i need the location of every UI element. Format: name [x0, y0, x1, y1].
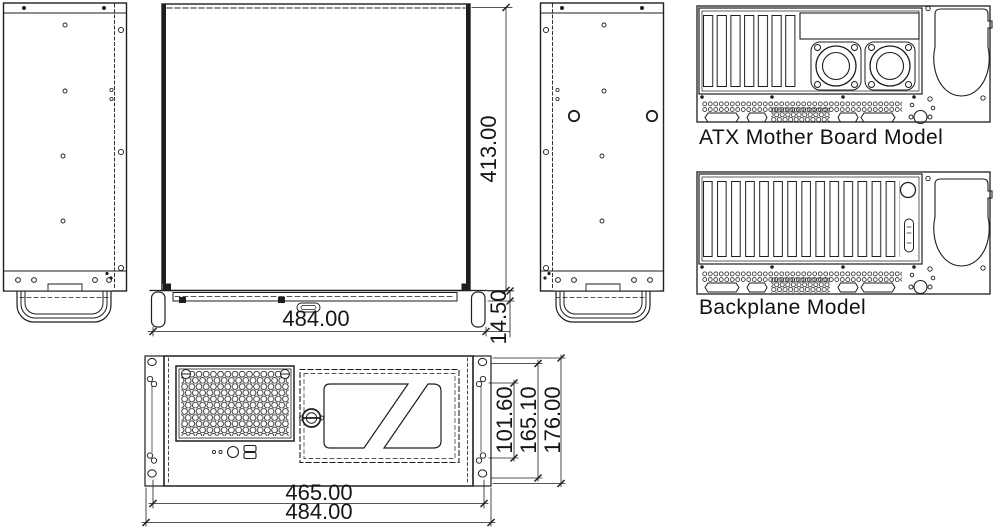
top-view — [150, 4, 487, 327]
door-window-left — [324, 384, 408, 448]
io-shield-cutout — [800, 13, 919, 39]
label-backplane-model: Backplane Model — [699, 296, 866, 320]
front-door — [299, 370, 459, 463]
dim-opening-height: 101.60 — [493, 384, 517, 456]
front-foot-left — [152, 292, 166, 327]
power-inlet-plate — [905, 219, 914, 252]
rear-view-atx — [697, 6, 992, 124]
technical-drawing-canvas: 413.00 484.00 14.50 ATX Mother Board Mod… — [0, 0, 999, 527]
rear-view-backplane — [697, 172, 992, 294]
led-icon — [219, 450, 222, 453]
dim-depth: 413.00 — [477, 109, 501, 189]
door-window-right — [384, 384, 441, 448]
dim-mount-height: 165.10 — [517, 384, 541, 456]
usb-port-icon — [244, 446, 256, 452]
dim-overall-width: 484.00 — [279, 500, 359, 524]
rack-ear-right — [473, 356, 491, 486]
side-view-right — [541, 3, 664, 322]
dim-front-strip: 14.50 — [487, 282, 511, 352]
led-icon — [212, 450, 215, 453]
dim-overall-height: 176.00 — [541, 384, 565, 456]
front-view — [145, 356, 491, 486]
thumbscrew-hole — [569, 111, 579, 121]
front-vent-grille — [176, 366, 294, 441]
side-view-left — [4, 3, 127, 322]
rack-ear-left — [145, 356, 164, 486]
fan-hole — [901, 183, 916, 198]
expansion-slots — [703, 15, 796, 87]
dim-top-width: 484.00 — [276, 307, 356, 331]
front-foot-right — [472, 292, 486, 327]
door-lock-icon — [299, 409, 323, 427]
label-atx-model: ATX Mother Board Model — [699, 126, 943, 150]
usb-port-icon — [244, 453, 256, 459]
power-button-icon — [228, 447, 239, 458]
thumbscrew-hole — [647, 111, 657, 121]
front-indicators — [212, 446, 256, 459]
expansion-slots — [703, 181, 900, 257]
